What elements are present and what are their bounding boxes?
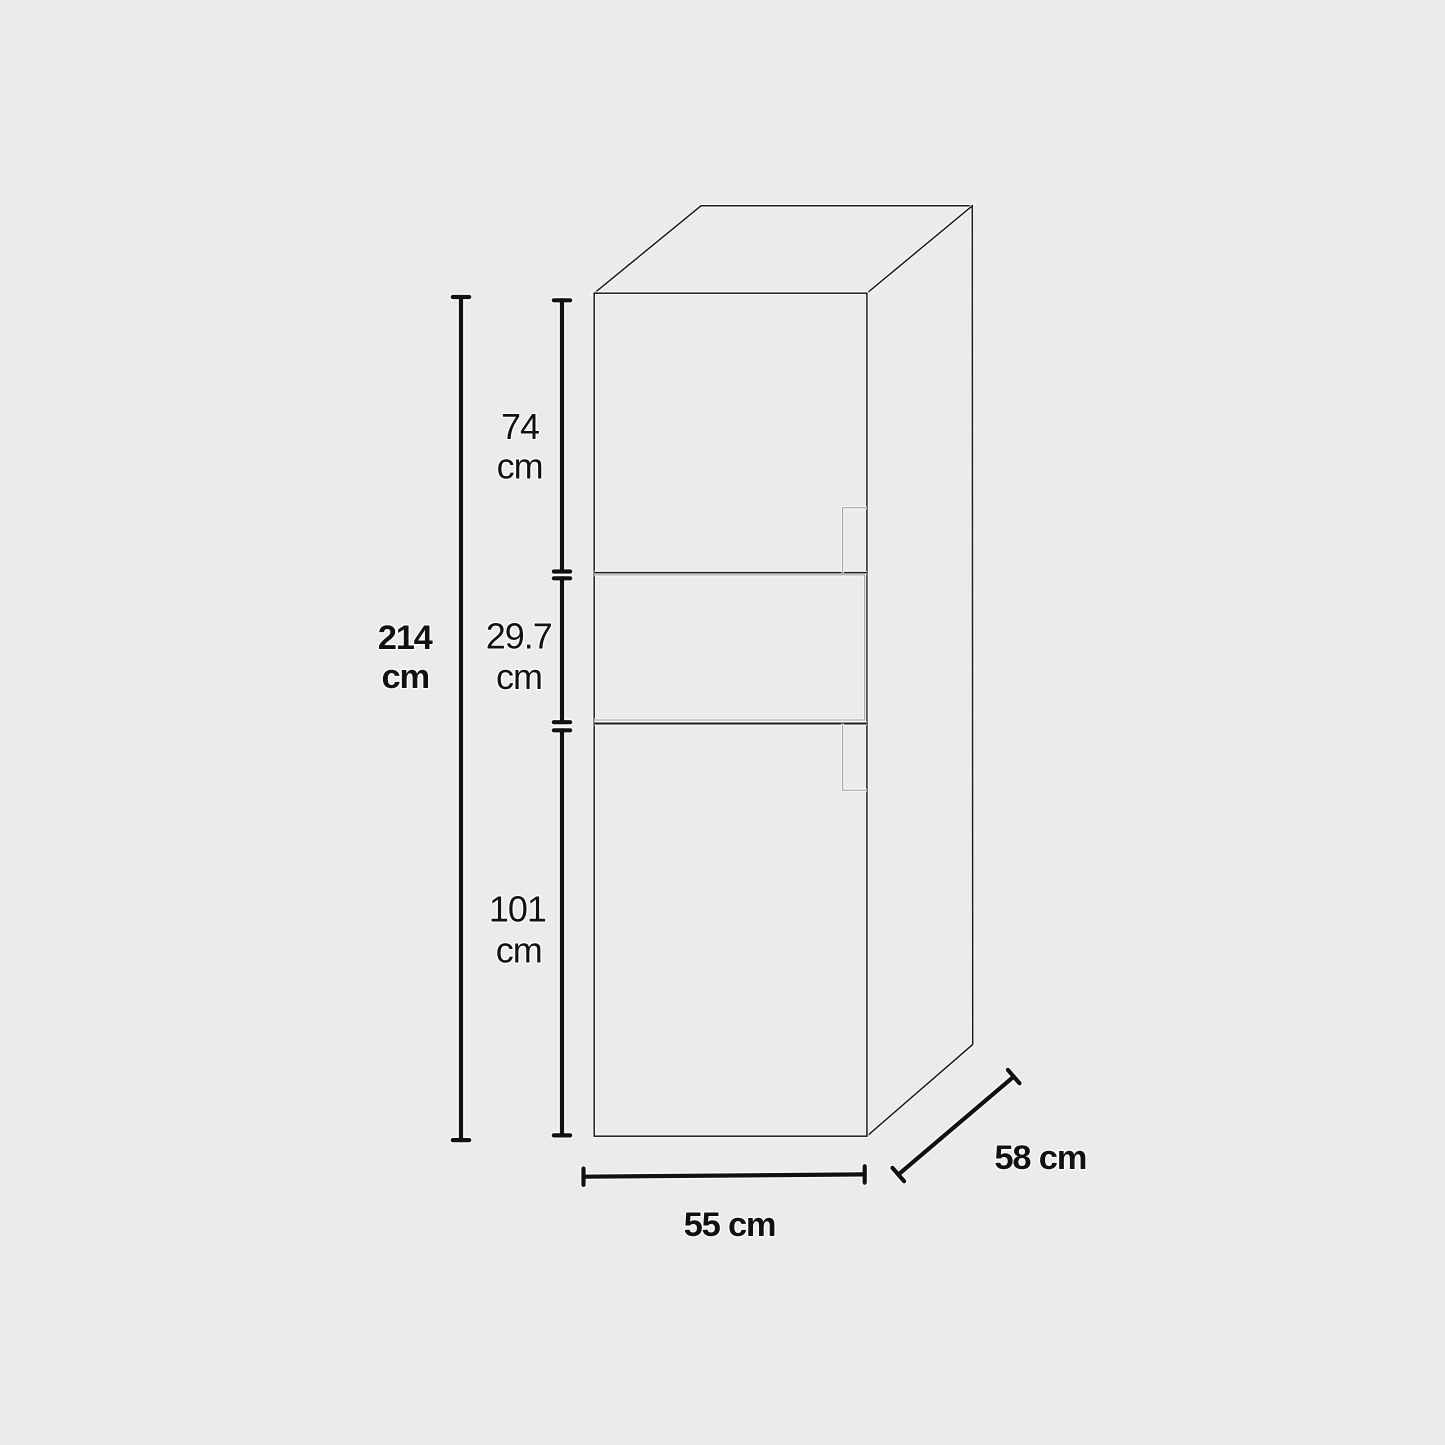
svg-text:cm: cm (496, 930, 542, 971)
svg-text:cm: cm (381, 658, 428, 696)
svg-text:214: 214 (378, 619, 433, 657)
svg-text:74: 74 (501, 406, 539, 447)
svg-text:29.7: 29.7 (486, 615, 552, 656)
svg-text:101: 101 (489, 889, 546, 930)
svg-text:cm: cm (497, 446, 543, 487)
svg-text:58 cm: 58 cm (994, 1139, 1086, 1177)
svg-text:cm: cm (496, 656, 542, 697)
svg-text:55 cm: 55 cm (684, 1206, 776, 1244)
